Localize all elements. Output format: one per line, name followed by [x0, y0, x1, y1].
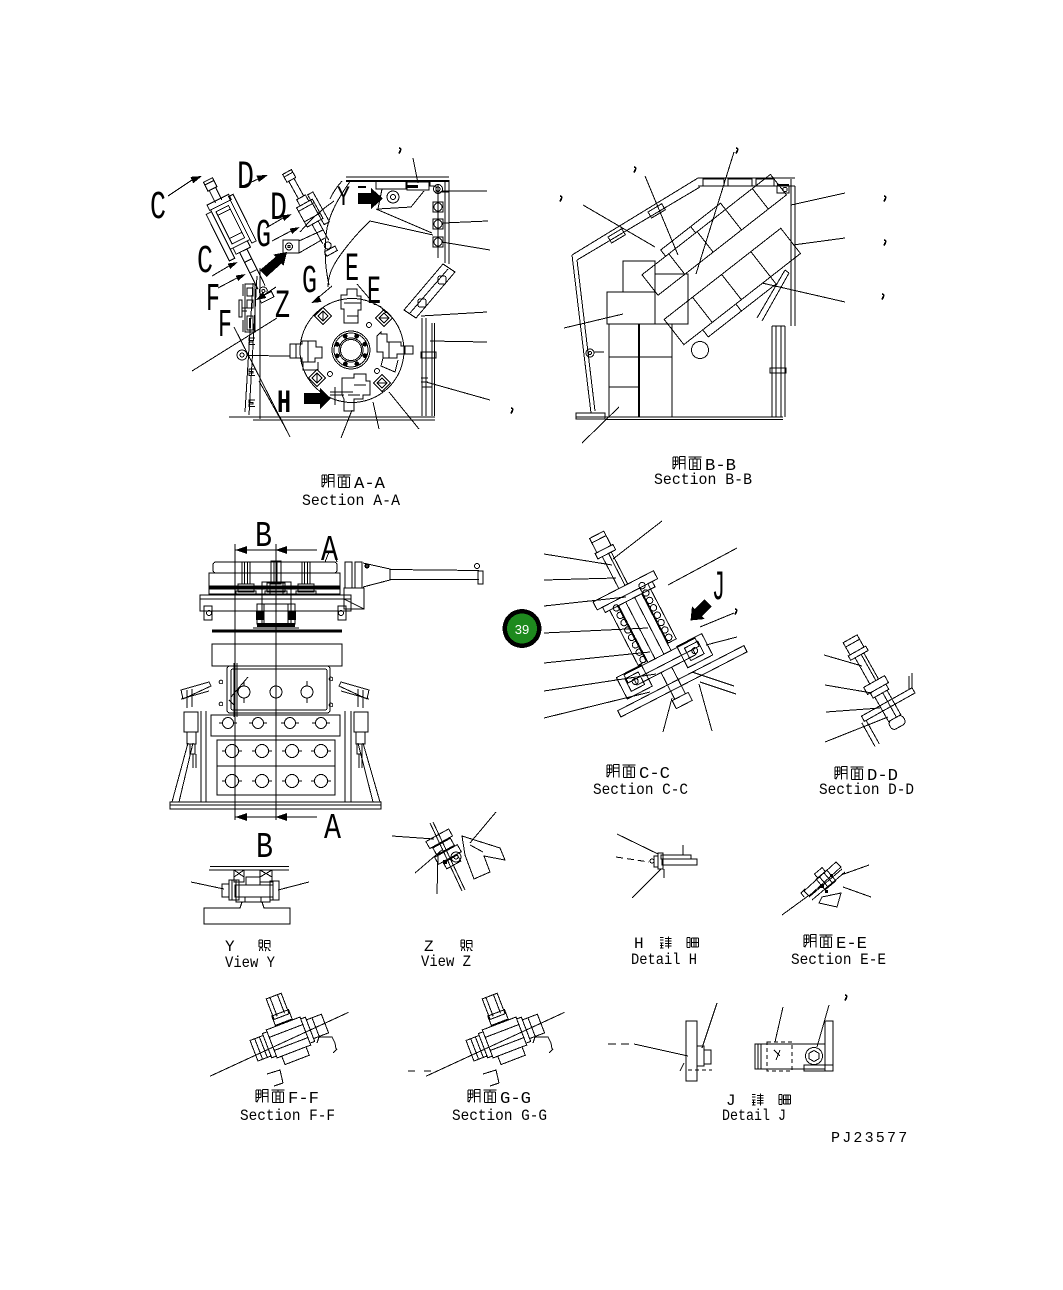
svg-text:J: J [712, 564, 725, 612]
svg-text:A: A [321, 530, 338, 571]
svg-text:Section E-E: Section E-E [791, 951, 886, 969]
svg-text:E: E [345, 248, 359, 293]
svg-text:D: D [270, 187, 287, 232]
svg-text:View Z: View Z [421, 953, 471, 971]
svg-text:B: B [256, 827, 273, 868]
svg-text:PJ23577: PJ23577 [831, 1130, 909, 1147]
svg-text:G: G [302, 260, 317, 305]
svg-text:Detail J: Detail J [722, 1107, 786, 1125]
svg-text:D: D [237, 156, 254, 201]
svg-text:39: 39 [515, 622, 529, 637]
svg-text:View Y: View Y [225, 954, 275, 972]
svg-text:B: B [255, 516, 272, 557]
svg-text:E: E [367, 271, 381, 316]
svg-text:Section C-C: Section C-C [593, 781, 688, 799]
svg-text:Section A-A: Section A-A [302, 492, 400, 510]
svg-text:Section D-D: Section D-D [819, 781, 914, 799]
svg-text:Detail H: Detail H [631, 951, 697, 969]
svg-text:C: C [150, 186, 166, 231]
svg-text:Section G-G: Section G-G [452, 1107, 547, 1125]
svg-text:G: G [256, 214, 271, 259]
svg-text:F: F [218, 304, 232, 349]
svg-text:Z: Z [275, 285, 290, 330]
svg-text:A: A [324, 808, 341, 849]
svg-text:Section F-F: Section F-F [240, 1107, 335, 1125]
svg-text:Section B-B: Section B-B [654, 471, 752, 489]
